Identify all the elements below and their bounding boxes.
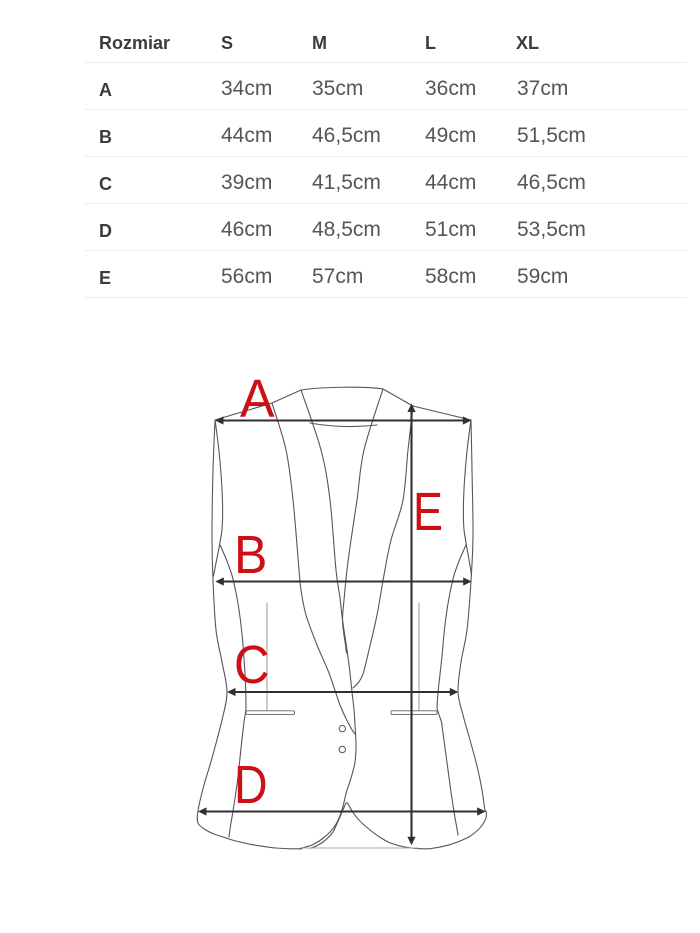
svg-text:D: D (234, 755, 268, 815)
svg-text:E: E (413, 482, 443, 542)
svg-text:A: A (240, 369, 275, 429)
svg-text:C: C (234, 635, 270, 695)
svg-text:B: B (234, 525, 267, 585)
